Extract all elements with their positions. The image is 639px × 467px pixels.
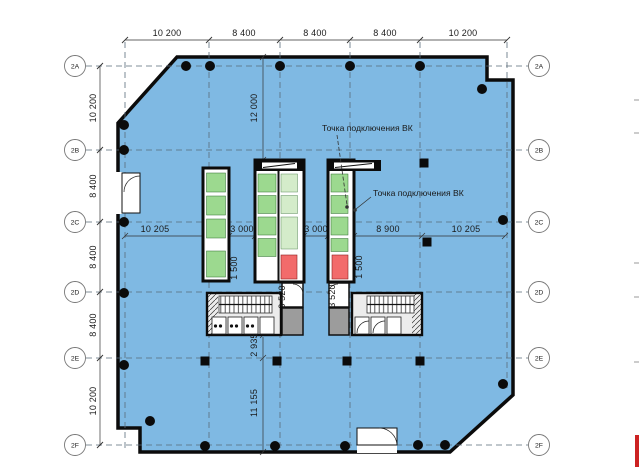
grid-label: 2C: [71, 220, 80, 227]
column-dot: [477, 84, 487, 94]
dim-3520-right: 3 520: [327, 284, 337, 308]
column-square: [416, 357, 425, 366]
annotation-text: Точка подключения ВК: [373, 188, 464, 198]
column-dot: [275, 61, 285, 71]
clipped-red-line: [635, 435, 639, 467]
dim-top-4: 8 400: [373, 28, 397, 38]
dim-left-3: 8 400: [88, 245, 98, 269]
grid-label: 2F: [535, 443, 543, 450]
column-dot: [270, 441, 280, 451]
dim-mid-1: 10 205: [141, 224, 170, 234]
column-square: [201, 357, 210, 366]
dim-left-2: 8 400: [88, 174, 98, 198]
dim-top-3: 8 400: [303, 28, 327, 38]
green-cell-pale: [281, 196, 298, 214]
green-cell: [207, 251, 226, 277]
column-dot: [498, 379, 508, 389]
column-dot: [345, 61, 355, 71]
column-dot: [340, 441, 350, 451]
column-dot: [415, 61, 425, 71]
floor-plan-canvas: 10 200 8 400 8 400 8 400 10 200 10 200 8…: [0, 0, 639, 467]
grid-label: 2A: [71, 64, 80, 71]
column-dot: [205, 61, 215, 71]
floor-slab: [118, 57, 513, 452]
green-cell: [258, 217, 276, 235]
column-square: [423, 238, 432, 247]
dim-left-1: 10 200: [88, 94, 98, 123]
dim-1500-left: 1 500: [229, 256, 239, 280]
dim-left-5: 10 200: [88, 387, 98, 416]
green-cell: [207, 173, 226, 192]
grid-bubbles-left: 2A 2B 2C 2D 2E 2F: [65, 56, 86, 456]
grid-label: 2B: [71, 148, 80, 155]
column-dot: [119, 120, 129, 130]
column-dot: [119, 288, 129, 298]
dim-mid-4: 8 900: [376, 224, 400, 234]
green-cell: [207, 196, 226, 215]
core-left: [255, 160, 304, 282]
stair-block-right: [352, 293, 422, 335]
shaft-strip-left: [203, 168, 229, 281]
dim-mid-3: 3 000: [304, 224, 328, 234]
green-cell: [331, 174, 348, 192]
column-dot: [181, 61, 191, 71]
column-square: [420, 159, 429, 168]
door-opening-left-wall: [114, 172, 140, 214]
column-dot: [440, 440, 450, 450]
grid-bubbles-right: 2A 2B 2C 2D 2E 2F: [529, 56, 550, 456]
column-square: [273, 357, 282, 366]
dim-2935: 2 935: [249, 333, 259, 357]
dim-top-2: 8 400: [232, 28, 256, 38]
column-dot: [119, 217, 129, 227]
column-dot: [119, 145, 129, 155]
dim-mid-5: 10 205: [452, 224, 481, 234]
shaft-gray: [282, 308, 303, 335]
green-cell: [331, 239, 348, 252]
grid-label: 2E: [71, 356, 80, 363]
dimension-chain-top: 10 200 8 400 8 400 8 400 10 200: [122, 28, 510, 43]
green-cell-pale: [281, 174, 298, 192]
red-cell: [332, 255, 348, 279]
green-cell: [331, 217, 348, 235]
annotation-text: Точка подключения ВК: [322, 123, 413, 133]
door-opening-bottom-wall: [357, 428, 397, 453]
dim-left-4: 8 400: [88, 313, 98, 337]
green-cell: [331, 196, 348, 214]
green-cell: [258, 239, 276, 257]
dim-mid-2: 3 000: [230, 224, 254, 234]
dim-3520-left: 3 520: [277, 285, 287, 309]
grid-label: 2D: [71, 290, 80, 297]
grid-label: 2D: [535, 290, 544, 297]
elevator-cell: [387, 317, 401, 334]
red-cell: [281, 255, 297, 279]
grid-label: 2B: [535, 148, 544, 155]
floorplan-page: 10 200 8 400 8 400 8 400 10 200 10 200 8…: [0, 0, 639, 467]
grid-label: 2A: [535, 64, 544, 71]
dim-12000: 12 000: [249, 94, 259, 123]
dim-top-1: 10 200: [153, 28, 182, 38]
elevator-cell: [260, 317, 274, 334]
grid-label: 2F: [71, 443, 79, 450]
column-dot: [498, 215, 508, 225]
green-cell: [207, 219, 226, 238]
column-square: [343, 357, 352, 366]
green-cell: [258, 174, 276, 192]
grid-label: 2E: [535, 356, 544, 363]
shaft-gray: [329, 308, 349, 335]
dim-11155: 11 155: [249, 389, 259, 417]
stair-block-left: [207, 293, 281, 335]
grid-label: 2C: [535, 220, 544, 227]
column-dot: [119, 360, 129, 370]
column-dot: [413, 440, 423, 450]
column-dot: [200, 441, 210, 451]
dim-top-5: 10 200: [449, 28, 478, 38]
edge-clip-marks: [634, 100, 639, 467]
dimension-chain-left: 10 200 8 400 8 400 8 400 10 200: [88, 63, 103, 448]
dim-1500-right: 1 500: [354, 255, 364, 279]
green-cell: [258, 196, 276, 214]
column-dot: [145, 416, 155, 426]
green-cell-pale: [281, 217, 298, 249]
